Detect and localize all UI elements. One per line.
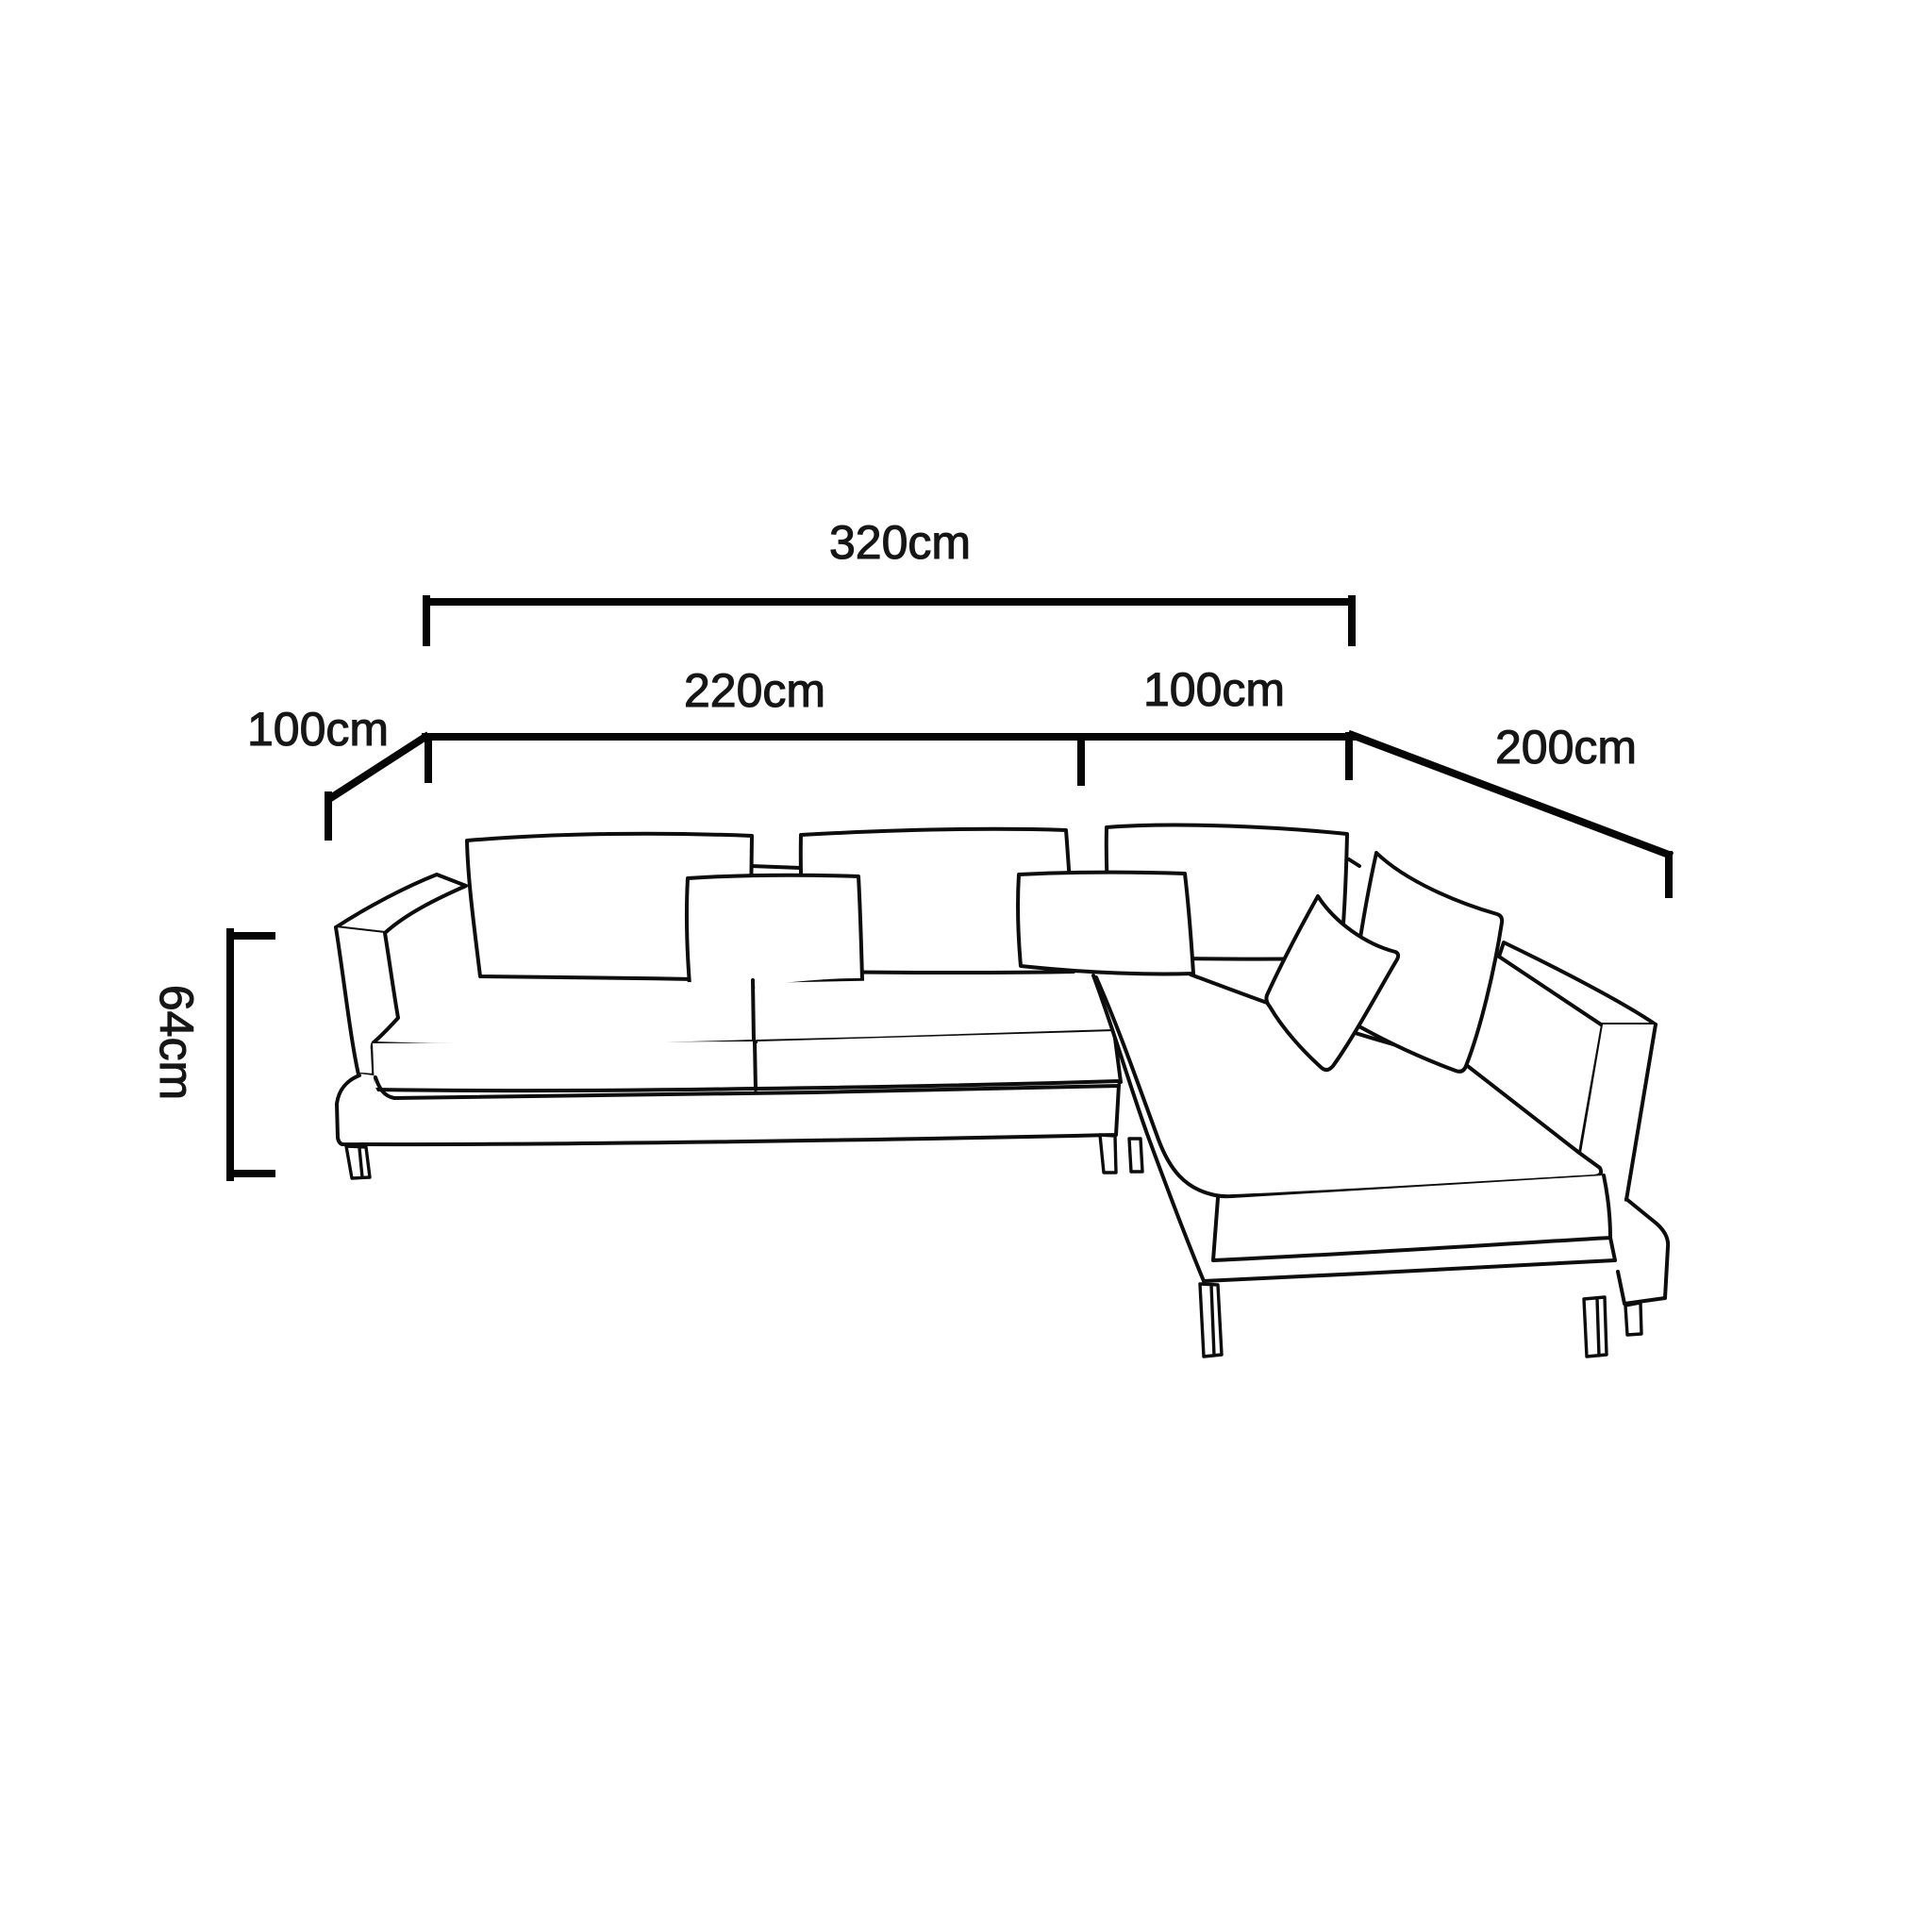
svg-text:64cm: 64cm	[150, 985, 203, 1100]
svg-text:200cm: 200cm	[1495, 721, 1637, 774]
svg-text:100cm: 100cm	[1143, 663, 1285, 716]
svg-text:220cm: 220cm	[684, 664, 825, 717]
svg-text:320cm: 320cm	[829, 516, 971, 569]
svg-text:100cm: 100cm	[247, 703, 389, 756]
